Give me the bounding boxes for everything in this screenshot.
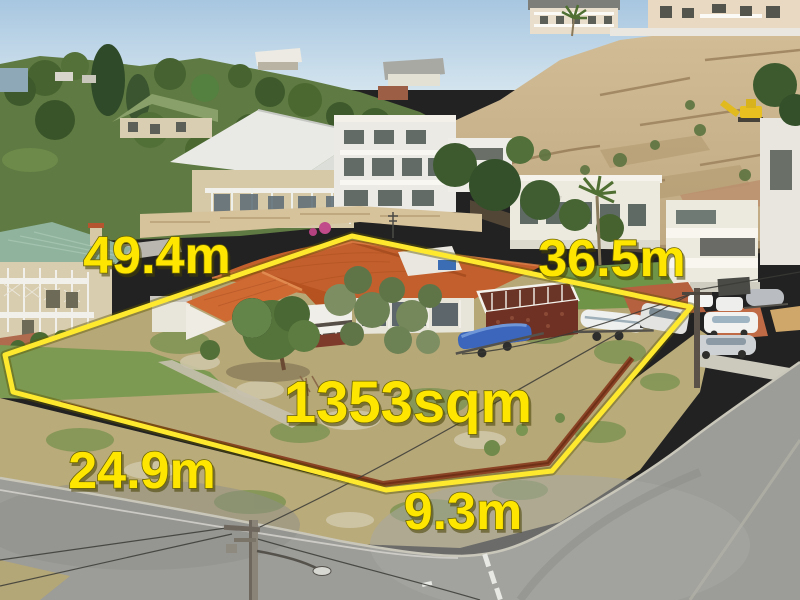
label-side-right: 36.5m [538, 230, 685, 288]
right-mansion [648, 0, 800, 32]
label-side-bottom-left: 24.9m [68, 442, 215, 500]
label-side-bottom: 9.3m [404, 483, 523, 541]
label-area: 1353sqm [284, 370, 532, 435]
label-side-left: 49.4m [83, 227, 230, 285]
silver-sedan [694, 335, 756, 359]
aerial-property-photo: 49.4m 36.5m 1353sqm 24.9m 9.3m [0, 0, 800, 600]
grey-roof-house [383, 58, 445, 86]
covered-boat [744, 289, 788, 308]
